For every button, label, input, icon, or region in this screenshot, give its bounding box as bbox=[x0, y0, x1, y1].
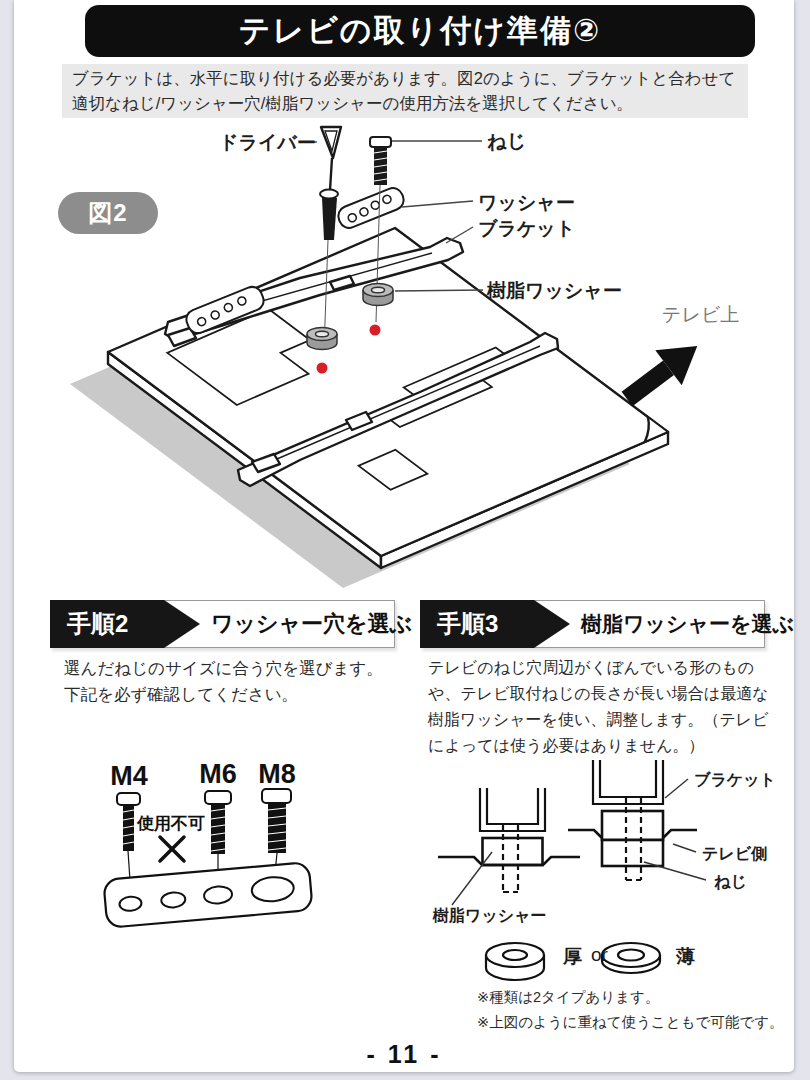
label-washer: ワッシャー bbox=[478, 190, 575, 216]
step2-badge: 手順2 bbox=[50, 600, 200, 648]
cross-icon bbox=[160, 837, 184, 861]
label-thick: 厚 bbox=[563, 944, 582, 970]
resin-washer-lower bbox=[307, 328, 337, 350]
label-screw: ねじ bbox=[487, 129, 526, 155]
label-unusable: 使用不可 bbox=[136, 814, 205, 833]
label-cs-screw: ねじ bbox=[714, 872, 747, 893]
label-cs-resin-washer: 樹脂ワッシャー bbox=[433, 906, 547, 927]
washer-plate bbox=[335, 185, 406, 231]
label-bracket: ブラケット bbox=[478, 216, 575, 242]
label-tv-top: テレビ上 bbox=[662, 302, 739, 328]
note-1: ※種類は2タイプあります。 bbox=[477, 988, 659, 1007]
label-resin-washer: 樹脂ワッシャー bbox=[487, 278, 622, 304]
label-cs-tv-side: テレビ側 bbox=[702, 844, 767, 865]
screw-size-diagram: M4 M6 M8 使用不可 bbox=[55, 745, 405, 945]
section-left bbox=[438, 788, 580, 892]
hole-marker-upper bbox=[370, 325, 381, 336]
hole-marker-lower bbox=[317, 363, 328, 374]
intro-text: ブラケットは、水平に取り付ける必要があります。図2のように、ブラケットと合わせて… bbox=[62, 64, 748, 118]
step2-header: 手順2 ワッシャー穴を選ぶ bbox=[50, 600, 395, 648]
step3-title: 樹脂ワッシャーを選ぶ bbox=[581, 601, 794, 647]
note-2: ※上図のように重ねて使うこともで可能です。 bbox=[477, 1013, 784, 1032]
thick-washer-icon bbox=[486, 943, 544, 980]
page-number: - 11 - bbox=[14, 1040, 794, 1069]
step3-badge: 手順3 bbox=[420, 600, 570, 648]
manual-page: テレビの取り付け準備② ブラケットは、水平に取り付ける必要があります。図2のよう… bbox=[14, 0, 794, 1072]
label-m4: M4 bbox=[110, 761, 148, 791]
label-thin: 薄 bbox=[676, 944, 695, 970]
label-m8: M8 bbox=[258, 759, 296, 789]
resin-washer-upper bbox=[363, 284, 393, 306]
step2-title: ワッシャー穴を選ぶ bbox=[211, 601, 412, 647]
page-title: テレビの取り付け準備② bbox=[85, 5, 755, 57]
label-driver: ドライバー bbox=[219, 130, 316, 156]
label-cs-bracket: ブラケット bbox=[694, 770, 776, 791]
label-or: or bbox=[591, 944, 608, 966]
section-right bbox=[568, 760, 697, 880]
thin-washer-icon bbox=[602, 943, 660, 973]
step2-body: 選んだねじのサイズに合う穴を選びます。下記を必ず確認してください。 bbox=[64, 655, 399, 707]
step3-header: 手順3 樹脂ワッシャーを選ぶ bbox=[420, 600, 765, 648]
hole-plate bbox=[103, 862, 312, 928]
step3-body: テレビのねじ穴周辺がくぼんでいる形のものや、テレビ取付ねじの長さが長い場合は最適… bbox=[428, 655, 780, 759]
label-m6: M6 bbox=[199, 759, 237, 789]
figure2-illustration bbox=[40, 115, 770, 595]
